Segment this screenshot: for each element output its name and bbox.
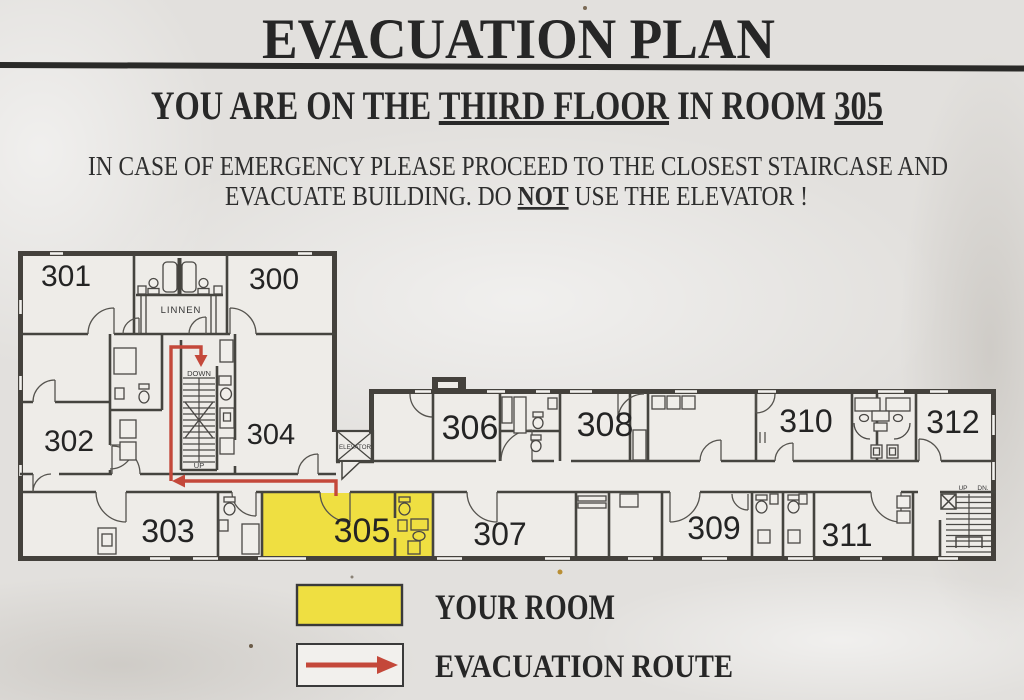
svg-text:306: 306: [442, 409, 499, 447]
svg-text:DOWN: DOWN: [187, 369, 211, 378]
svg-text:309: 309: [687, 510, 740, 546]
svg-text:EVACUATE BUILDING. DO NOT USE: EVACUATE BUILDING. DO NOT USE THE ELEVAT…: [225, 181, 808, 211]
svg-text:YOU ARE ON THE THIRD FLOOR IN: YOU ARE ON THE THIRD FLOOR IN ROOM 305: [151, 83, 883, 128]
svg-text:UP: UP: [958, 485, 967, 492]
svg-text:LINNEN: LINNEN: [161, 305, 202, 316]
svg-text:IN CASE OF EMERGENCY PLEASE PR: IN CASE OF EMERGENCY PLEASE PROCEED TO T…: [88, 151, 948, 181]
svg-text:311: 311: [821, 517, 872, 553]
svg-text:EVACUATION PLAN: EVACUATION PLAN: [262, 8, 775, 71]
svg-text:YOUR ROOM: YOUR ROOM: [435, 587, 615, 627]
svg-text:UP: UP: [194, 461, 204, 470]
svg-text:304: 304: [247, 419, 295, 451]
svg-text:EVACUATION ROUTE: EVACUATION ROUTE: [435, 649, 733, 685]
svg-text:303: 303: [141, 513, 194, 549]
svg-text:ELEVATOR: ELEVATOR: [339, 444, 372, 451]
svg-text:307: 307: [473, 516, 526, 552]
svg-text:312: 312: [926, 404, 979, 440]
svg-text:310: 310: [779, 403, 832, 439]
svg-text:DN.: DN.: [977, 485, 988, 492]
svg-text:305: 305: [334, 512, 391, 550]
svg-text:302: 302: [44, 425, 94, 458]
svg-text:300: 300: [249, 263, 299, 296]
svg-text:301: 301: [41, 260, 91, 293]
svg-text:308: 308: [577, 406, 634, 444]
